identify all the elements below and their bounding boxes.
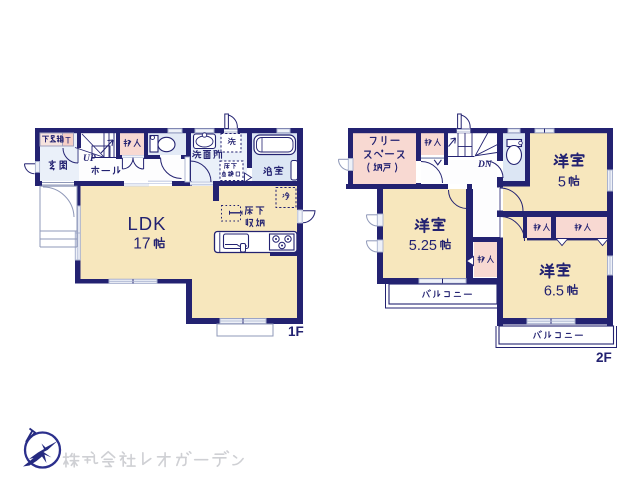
svg-text:5.25: 5.25	[409, 238, 437, 254]
svg-text:LDK: LDK	[128, 213, 167, 234]
svg-text:6.5: 6.5	[544, 284, 564, 300]
svg-text:17: 17	[133, 236, 150, 253]
svg-text:2F: 2F	[596, 350, 612, 365]
svg-text:UP: UP	[83, 154, 96, 164]
svg-text:1F: 1F	[288, 324, 304, 339]
svg-text:5: 5	[558, 175, 566, 191]
svg-text:T: T	[65, 136, 71, 146]
